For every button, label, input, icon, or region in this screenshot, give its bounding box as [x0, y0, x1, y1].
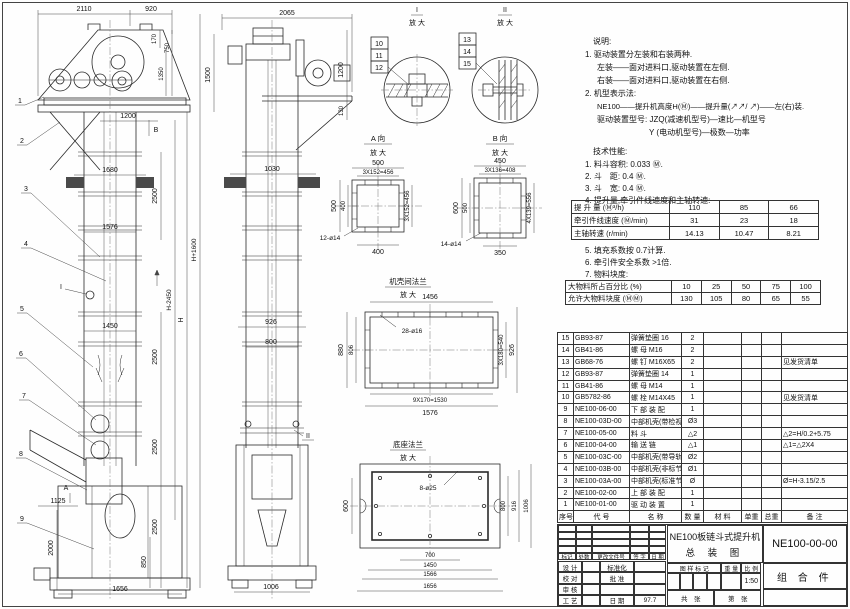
balloon-ref: 5	[20, 306, 24, 313]
lump-row: 允许大物料块度 (ⓂⓂ)130105806555	[566, 293, 821, 305]
bom-row: 3NE100-03A-00中部机壳(标准节2.5Ⓜ)ØØ=H-3.15/2.5	[558, 475, 848, 487]
detail-i-subtitle: 放 大	[409, 18, 425, 27]
wall-bracket	[224, 177, 246, 188]
sig-label: 日 期	[600, 595, 634, 606]
dim-label: 1030	[264, 166, 280, 173]
dim-label: 1500	[205, 67, 212, 83]
dim-label: 700	[425, 553, 436, 559]
dim-label: 2110	[76, 6, 91, 13]
dim-label: 1656	[112, 586, 128, 593]
balloon-ref: 10	[375, 41, 383, 48]
dim-label: 750	[165, 42, 171, 53]
view-b-subtitle: 放 大	[492, 148, 508, 157]
dim-label: 170	[152, 33, 158, 44]
bom-row: 15GB93-87弹簧垫圈 162	[558, 333, 848, 345]
dim-label: 1350	[159, 67, 165, 81]
rev-col-header: 日 期	[649, 553, 666, 560]
dim-label: 350	[494, 250, 506, 257]
flange-base-subtitle: 放 大	[400, 453, 416, 462]
drawing-area: 2110 920 170 750 1350 1500 1200 B 1680 2…	[0, 0, 557, 609]
bom-row: 9NE100-06-00下 部 装 配1	[558, 404, 848, 416]
wall-bracket	[136, 177, 154, 188]
balloon-ref: 7	[22, 393, 26, 400]
head-housing	[38, 30, 190, 100]
balloon-ref: 2	[20, 138, 24, 145]
dim-label: 400	[372, 249, 384, 256]
bom-row: 10GB5782-86螺 栓 M14X451见发货清单	[558, 392, 848, 404]
tech-item: 2. 斗 距: 0.4 Ⓜ.	[585, 171, 646, 182]
bom-row: 6NE100-04-00输 送 链△1△1=△2X4	[558, 440, 848, 452]
sig-label: 校 对	[558, 572, 582, 583]
sig-label: 工 艺	[558, 595, 582, 606]
signature-grid: 设 计 标准化 校 对 批 准 审 核 工 艺 日 期 97.7	[558, 561, 667, 606]
drawing-title: NE100板链斗式提升机	[670, 530, 761, 543]
view-a-subtitle: 放 大	[370, 148, 386, 157]
dim-label: 1200	[120, 113, 136, 120]
dim-label: 926	[265, 319, 277, 326]
dim-label: 2500	[152, 439, 159, 455]
dim-label: 1456	[422, 294, 438, 301]
rev-col-header: 标记	[558, 553, 576, 560]
note-line: NE100——提升机高度H(Ⓜ)——提升量(↗↗/ ↗)——左(右)装.	[597, 101, 804, 112]
revision-grid: 标记 处数 更改文件号 签 字 日 期	[558, 525, 667, 561]
dim-label: 600	[453, 202, 460, 214]
balloon-ref: 6	[19, 351, 23, 358]
dim-label: 2500	[152, 519, 159, 535]
balloon-ref: 4	[24, 241, 28, 248]
rev-col-header: 更改文件号	[592, 553, 630, 560]
dim-label: H-2450	[166, 289, 173, 311]
dim-label: 4X139=556	[527, 192, 533, 224]
mark-header: 图 样 标 记	[667, 563, 721, 573]
wall-bracket	[66, 177, 84, 188]
balloon-ref: 9	[20, 516, 24, 523]
dim-label: 500	[463, 202, 469, 213]
dim-label: 2500	[152, 188, 159, 204]
bom-row: 13GB68-76螺 钉 M16X652见发货清单	[558, 356, 848, 368]
note-line: Y (电动机型号)—极数—功率	[649, 127, 750, 138]
title-block-date: 97.7	[634, 595, 666, 606]
note-line: 左装——面对进料口,驱动装置在左侧.	[597, 62, 729, 73]
scale-header: 比 例	[741, 563, 761, 573]
dim-label: 2500	[152, 349, 159, 365]
balloon-ref: 8	[19, 451, 23, 458]
bom-row: 12GB93-87弹簧垫圈 141	[558, 368, 848, 380]
bom-row: 1NE100-01-00驱 动 装 置1	[558, 499, 848, 511]
tech-item: 7. 物料块度:	[585, 269, 628, 280]
tech-item: 3. 斗 宽: 0.4 Ⓜ.	[585, 183, 646, 194]
detail-marker-ii: II	[306, 433, 310, 440]
balloon-ref: 11	[375, 53, 382, 60]
dim-label: 9X170=1530	[413, 398, 448, 404]
detail-ii-subtitle: 放 大	[497, 18, 513, 27]
performance-table: 提 升 量 (Ⓜ³/h)1108566牵引件线速度 (Ⓜ/min)312318主…	[571, 200, 819, 240]
tech-item: 5. 填充系数按 0.7计算.	[585, 245, 665, 256]
dim-label: 450	[494, 158, 506, 165]
view-a-title: A 向	[371, 133, 385, 143]
dim-label: 850	[141, 556, 148, 568]
perf-row: 提 升 量 (Ⓜ³/h)1108566	[572, 201, 819, 214]
rev-col-header: 处数	[576, 553, 592, 560]
balloon-ref: 12	[375, 65, 383, 72]
hole-callout: 28-ø16	[402, 328, 423, 335]
dim-label: 3X152=456	[405, 190, 411, 222]
note-line: 驱动装置型号: JZQ(减速机型号)—速比—机型号	[597, 114, 766, 125]
sig-label: 标准化	[600, 561, 634, 572]
dim-label: 600	[343, 500, 350, 512]
dim-label: 880	[338, 344, 345, 356]
tech-item: 1. 料斗容积: 0.033 Ⓜ.	[585, 159, 663, 170]
part-type: 组 合 件	[763, 563, 847, 589]
sheet-count: 共 张	[667, 590, 714, 606]
dim-label: 800	[501, 500, 507, 511]
balloon-ref: 1	[18, 98, 22, 105]
sig-label: 设 计	[558, 561, 582, 572]
dim-label: 1006	[524, 499, 530, 513]
tech-heading: 技术性能:	[593, 146, 627, 157]
dim-label: 1125	[50, 498, 65, 505]
dim-label: 3X136=408	[485, 168, 517, 174]
dim-label: 1450	[102, 323, 118, 330]
dim-label: 3X152=456	[363, 170, 395, 176]
dim-label: 2000	[48, 540, 55, 556]
note-line: 右装——面对进料口,驱动装置在右侧.	[597, 75, 729, 86]
bom-row: 8NE100-03D-00中部机壳(带检视门)Ø3	[558, 416, 848, 428]
perf-row: 主轴转速 (r/min)14.1310.478.21	[572, 227, 819, 240]
weight-header: 重 量	[721, 563, 741, 573]
dim-label: 920	[145, 6, 157, 13]
dim-label: 2065	[279, 10, 295, 17]
view-b-title: B 向	[493, 133, 508, 143]
sig-label: 批 准	[600, 572, 634, 583]
drawing-sheet: 2110 920 170 750 1350 1500 1200 B 1680 2…	[0, 0, 850, 609]
dim-label: 1576	[422, 410, 438, 417]
dim-label: H+1600	[191, 238, 198, 261]
scale-value: 1:50	[741, 573, 761, 590]
dim-label: 3X180=540	[499, 334, 505, 366]
rev-col-header: 签 字	[630, 553, 649, 560]
dim-label: 926	[509, 344, 516, 356]
note-line: 2. 机型表示法:	[585, 88, 636, 99]
dim-label: 806	[349, 344, 355, 355]
hole-callout: 8-ø25	[420, 485, 437, 492]
section-marker-b: B	[154, 127, 159, 134]
dim-label: 1006	[263, 584, 279, 591]
bom-table: 15GB93-87弹簧垫圈 16214GB41-86螺 母 M16213GB68…	[557, 332, 848, 523]
note-line: 1. 驱动装置分左装和右装两种.	[585, 49, 692, 60]
balloon-ref: 14	[463, 49, 471, 56]
detail-ii-title: II	[503, 7, 507, 14]
lump-size-table: 大物料所占百分比 (%)10255075100允许大物料块度 (ⓂⓂ)13010…	[565, 280, 821, 305]
right-panel: 说明: 1. 驱动装置分左装和右装两种. 左装——面对进料口,驱动装置在左侧. …	[557, 0, 848, 609]
dim-label: 500	[331, 200, 338, 212]
bom-header-row: 序号代 号名 称数 量材 料单重总重备 注	[558, 511, 848, 523]
dim-label: 130	[339, 105, 345, 116]
bom-row: 7NE100-05-00料 斗△2△2=H/0.2+5.75	[558, 428, 848, 440]
flange-mid-title: 机壳间法兰	[389, 276, 427, 286]
dim-label: 1566	[423, 572, 437, 578]
sheet-number: 第 张	[714, 590, 761, 606]
dim-label: 1200	[338, 62, 345, 78]
bom-row: 14GB41-86螺 母 M162	[558, 344, 848, 356]
tech-item: 6. 牵引件安全系数 >1倍.	[585, 257, 671, 268]
dim-label: 916	[512, 500, 518, 511]
bom-row: 4NE100-03B-00中部机壳(非标节1.5Ⓜ,1Ⓜ)Ø1	[558, 463, 848, 475]
flange-mid-subtitle: 放 大	[400, 290, 416, 299]
bom-row: 2NE100-02-00上 部 装 配1	[558, 487, 848, 499]
dim-label: 500	[372, 160, 384, 167]
wall-bracket	[298, 177, 320, 188]
bom-row: 11GB41-86螺 母 M141	[558, 380, 848, 392]
balloon-ref: 13	[463, 37, 471, 44]
dim-label: 1680	[102, 167, 118, 174]
balloon-ref: 3	[24, 186, 28, 193]
title-block: 标记 处数 更改文件号 签 字 日 期 设 计 标准化 校 对 批 准 审 核 …	[557, 524, 848, 607]
balloon-ref: 15	[463, 61, 471, 68]
dim-label: 1656	[423, 584, 437, 590]
view-marker-a: A	[64, 485, 69, 492]
dim-label: 800	[265, 339, 277, 346]
hole-callout: 12-ø14	[320, 235, 341, 242]
dim-label: H	[178, 317, 185, 322]
sig-label: 审 核	[558, 584, 582, 595]
dim-label: 1576	[102, 224, 118, 231]
lump-row: 大物料所占百分比 (%)10255075100	[566, 281, 821, 293]
bom-row: 5NE100-03C-00中部机壳(带导轨)Ø2	[558, 451, 848, 463]
dim-label: 400	[341, 200, 347, 211]
hole-callout: 14-ø14	[441, 241, 462, 248]
flange-base-title: 底座法兰	[393, 439, 423, 449]
drawing-subtitle: 总 装 图	[686, 545, 745, 559]
notes-heading: 说明:	[593, 36, 611, 47]
perf-row: 牵引件线速度 (Ⓜ/min)312318	[572, 214, 819, 227]
detail-i-title: I	[416, 7, 418, 14]
dim-label: 1450	[423, 563, 437, 569]
drawing-number: NE100-00-00	[763, 525, 847, 563]
detail-marker-i: I	[60, 284, 62, 291]
